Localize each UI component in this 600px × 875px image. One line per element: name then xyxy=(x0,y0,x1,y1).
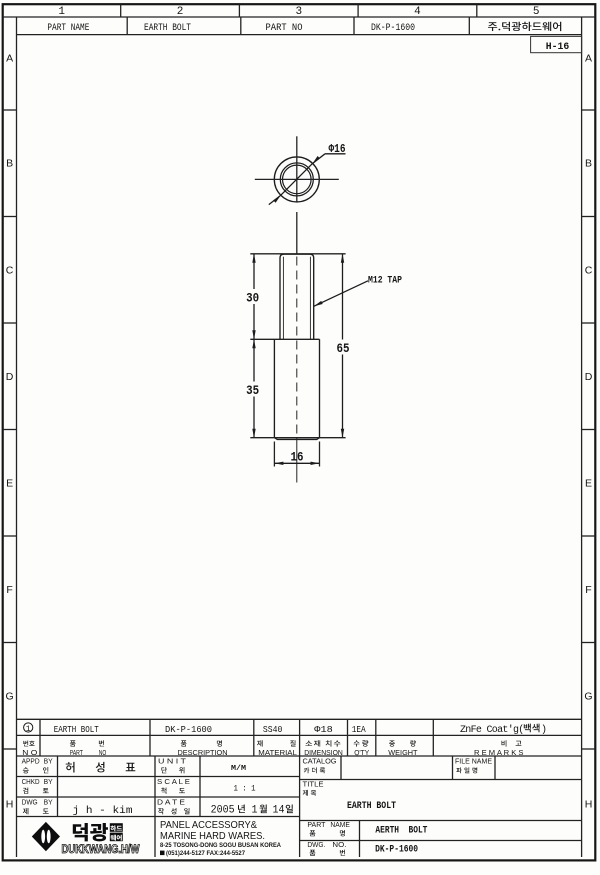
svg-text:PART: PART xyxy=(70,748,83,757)
svg-text:DK-P-1600: DK-P-1600 xyxy=(371,23,415,34)
svg-text:Q'TY: Q'TY xyxy=(354,748,369,757)
svg-text:M12 TAP: M12 TAP xyxy=(368,274,402,286)
svg-text:SS40: SS40 xyxy=(263,724,283,735)
svg-text:R E M A R K S: R E M A R K S xyxy=(474,748,524,757)
svg-text:MATERIAL: MATERIAL xyxy=(258,748,297,757)
svg-text:AERTH BOLT: AERTH BOLT xyxy=(375,825,427,837)
svg-text:E: E xyxy=(6,478,13,490)
svg-text:WEIGHT: WEIGHT xyxy=(388,748,418,757)
svg-text:PART: PART xyxy=(307,822,326,829)
svg-text:): ) xyxy=(541,724,547,736)
svg-text:5: 5 xyxy=(533,6,540,18)
svg-text:M/M: M/M xyxy=(231,765,247,773)
svg-text:E: E xyxy=(585,478,592,490)
svg-text:C: C xyxy=(6,265,14,277)
svg-text:A: A xyxy=(585,53,592,65)
svg-text:1EA: 1EA xyxy=(352,724,366,735)
svg-text:C: C xyxy=(585,265,593,277)
svg-text:MARINE HARD WARES.: MARINE HARD WARES. xyxy=(160,830,265,842)
svg-text:1: 1 xyxy=(26,725,31,734)
svg-text:ZnFe Coat'g(: ZnFe Coat'g( xyxy=(460,724,524,736)
svg-text:BY: BY xyxy=(44,758,53,765)
svg-text:H: H xyxy=(585,799,593,811)
svg-text:1 : 1: 1 : 1 xyxy=(234,783,256,793)
svg-text:B: B xyxy=(6,158,13,170)
svg-text:D: D xyxy=(6,371,14,383)
svg-text:14: 14 xyxy=(273,804,285,816)
svg-text:PART NO: PART NO xyxy=(266,23,303,34)
svg-text:NO.: NO. xyxy=(332,842,346,849)
svg-text:FILE NAME: FILE NAME xyxy=(455,758,492,765)
svg-text:EARTH BOLT: EARTH BOLT xyxy=(144,23,191,34)
svg-text:H-16: H-16 xyxy=(546,41,570,53)
svg-text:4: 4 xyxy=(414,6,421,18)
svg-text:DK-P-1600: DK-P-1600 xyxy=(375,843,418,855)
svg-text:DK-P-1600: DK-P-1600 xyxy=(165,724,212,735)
svg-text:DESCRIPTION: DESCRIPTION xyxy=(178,748,228,757)
svg-text:H: H xyxy=(6,799,14,811)
svg-text:Φ18: Φ18 xyxy=(314,724,333,735)
svg-text:Φ16: Φ16 xyxy=(329,143,346,156)
svg-text:16: 16 xyxy=(291,450,304,464)
svg-text:NAME: NAME xyxy=(330,822,350,829)
svg-text:D A T E: D A T E xyxy=(157,799,185,806)
svg-text:NO: NO xyxy=(99,748,107,757)
svg-text:B: B xyxy=(585,158,592,170)
svg-text:DWG: DWG xyxy=(22,799,38,806)
svg-text:CATALOG: CATALOG xyxy=(303,758,337,765)
svg-text:DWG.: DWG. xyxy=(307,842,325,849)
svg-text:BY: BY xyxy=(44,779,53,786)
svg-text:G: G xyxy=(584,691,592,703)
svg-text:2005: 2005 xyxy=(211,804,235,816)
svg-text:DUKKWANG.H/W: DUKKWANG.H/W xyxy=(62,844,140,856)
svg-text:EARTH BOLT: EARTH BOLT xyxy=(54,724,99,735)
svg-text:DIMENSION: DIMENSION xyxy=(304,748,343,757)
svg-text:(051)244-5127 FAX:244-5527: (051)244-5127 FAX:244-5527 xyxy=(166,850,245,857)
svg-text:S C A L E: S C A L E xyxy=(157,779,190,786)
svg-text:2: 2 xyxy=(177,6,184,18)
svg-text:EARTH BOLT: EARTH BOLT xyxy=(347,800,396,812)
svg-text:U N I T: U N I T xyxy=(158,758,187,765)
svg-text:j h - kim: j h - kim xyxy=(73,805,133,817)
svg-text:BY: BY xyxy=(44,799,53,806)
svg-text:PART NAME: PART NAME xyxy=(47,23,89,34)
svg-text:A: A xyxy=(6,53,13,65)
svg-text:8-25 TOSONG-DONG SOGU BUSAN KO: 8-25 TOSONG-DONG SOGU BUSAN KOREA xyxy=(160,842,281,849)
svg-text:30: 30 xyxy=(246,291,259,305)
svg-text:1: 1 xyxy=(58,6,65,18)
svg-text:APPD: APPD xyxy=(22,758,40,765)
svg-text:35: 35 xyxy=(246,384,259,398)
svg-text:D: D xyxy=(585,371,593,383)
svg-text:3: 3 xyxy=(295,6,302,18)
svg-text:F: F xyxy=(585,584,591,596)
svg-text:1: 1 xyxy=(252,804,258,816)
svg-text:65: 65 xyxy=(337,342,350,356)
svg-text:N O: N O xyxy=(22,748,37,757)
svg-text:F: F xyxy=(6,584,12,596)
svg-text:G: G xyxy=(6,691,14,703)
svg-text:TITLE: TITLE xyxy=(303,782,324,789)
svg-text:CHKD: CHKD xyxy=(22,779,40,786)
